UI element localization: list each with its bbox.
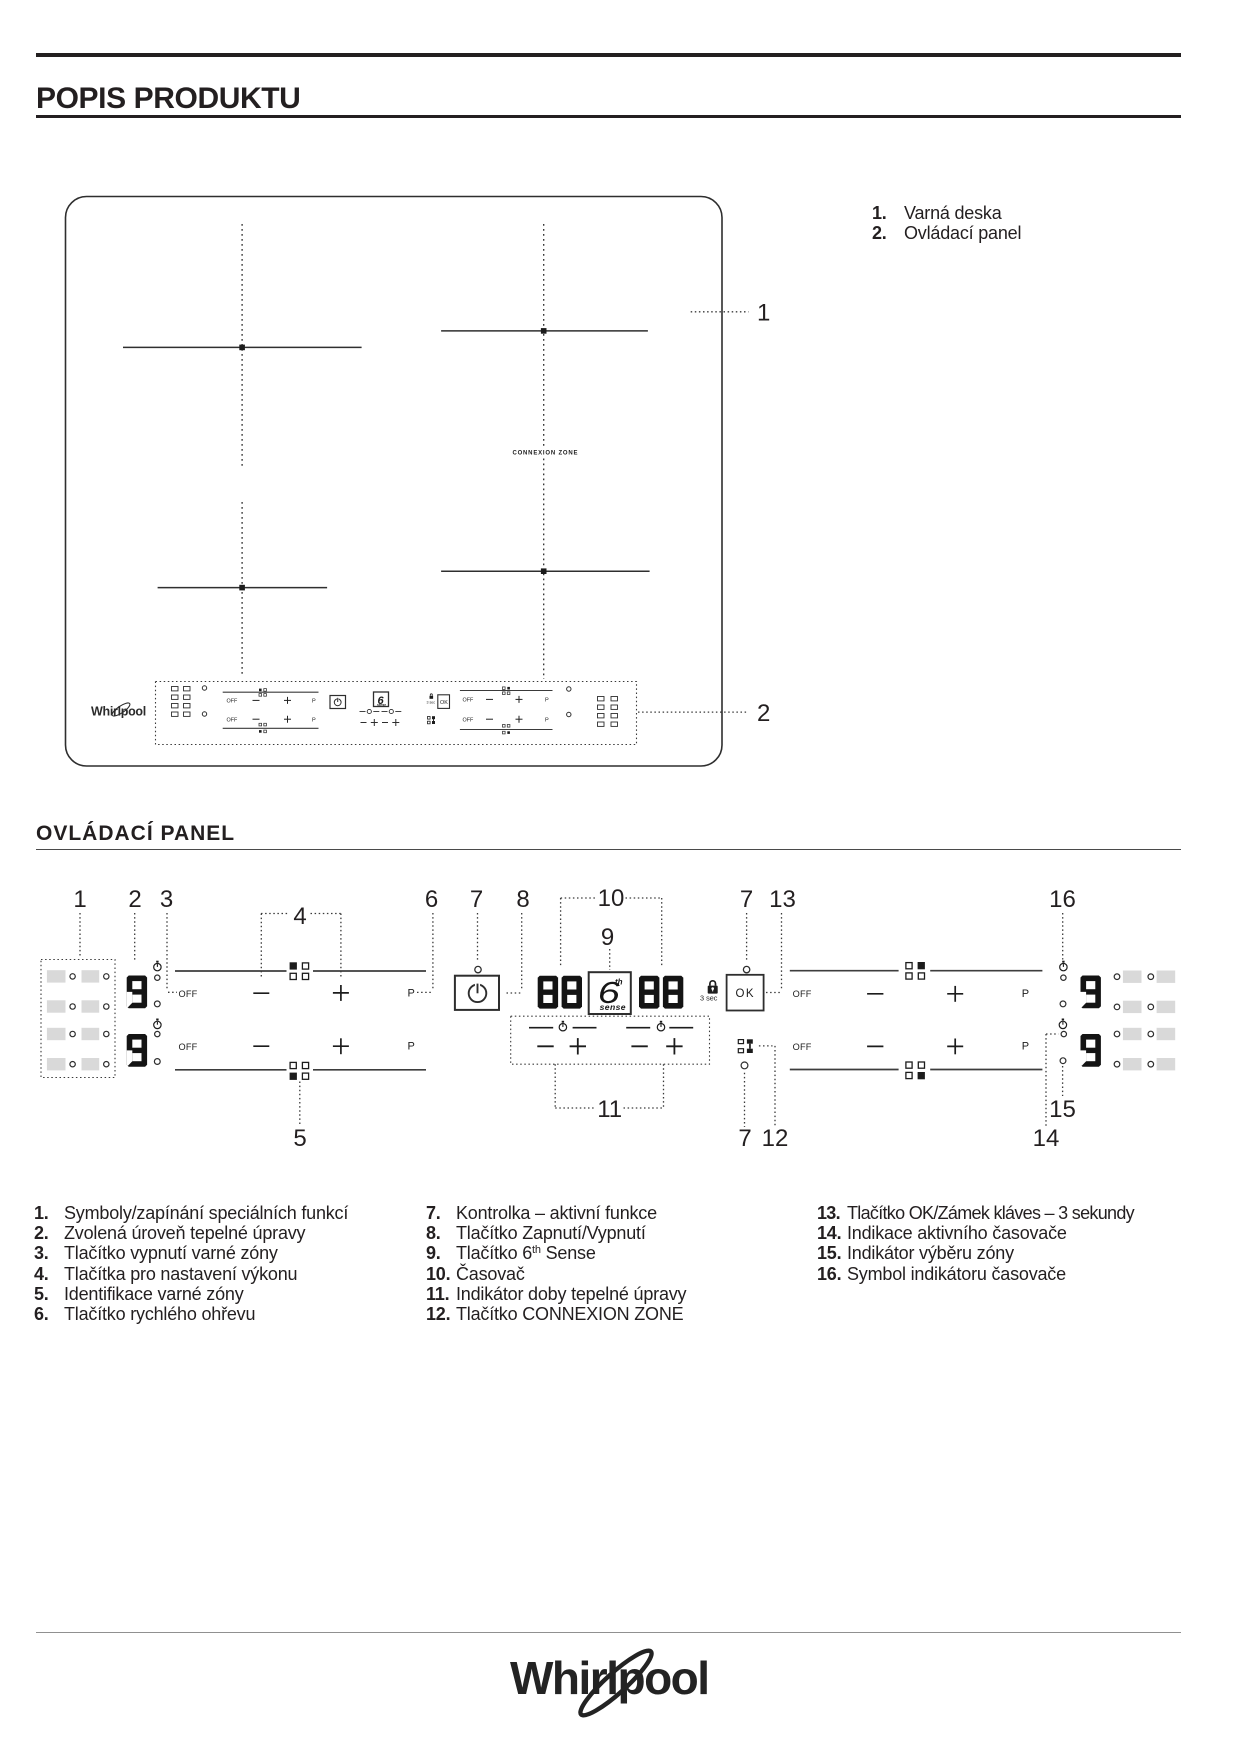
svg-text:2: 2 bbox=[757, 700, 770, 727]
svg-text:10: 10 bbox=[598, 885, 625, 912]
svg-text:14: 14 bbox=[1033, 1125, 1060, 1152]
svg-text:9: 9 bbox=[601, 924, 614, 951]
svg-text:P: P bbox=[312, 718, 316, 724]
svg-text:3: 3 bbox=[160, 886, 173, 913]
svg-text:P: P bbox=[312, 699, 316, 705]
svg-text:OK: OK bbox=[440, 700, 448, 706]
svg-text:12: 12 bbox=[762, 1125, 789, 1152]
svg-text:OFF: OFF bbox=[179, 1042, 198, 1052]
svg-text:P: P bbox=[545, 698, 549, 704]
svg-text:OFF: OFF bbox=[463, 698, 474, 704]
svg-text:1: 1 bbox=[73, 886, 86, 913]
svg-text:sense: sense bbox=[600, 1002, 626, 1012]
svg-text:P: P bbox=[545, 718, 549, 724]
svg-text:3 sec: 3 sec bbox=[700, 994, 718, 1003]
svg-text:3 sec: 3 sec bbox=[427, 701, 436, 705]
svg-text:8: 8 bbox=[516, 886, 529, 913]
svg-text:15: 15 bbox=[1049, 1096, 1076, 1123]
svg-text:11: 11 bbox=[597, 1096, 622, 1123]
svg-text:OFF: OFF bbox=[227, 699, 238, 705]
svg-text:16: 16 bbox=[1049, 886, 1076, 913]
svg-text:OFF: OFF bbox=[793, 989, 812, 999]
svg-text:6: 6 bbox=[425, 886, 438, 913]
svg-text:CONNEXION ZONE: CONNEXION ZONE bbox=[512, 451, 578, 457]
svg-text:13: 13 bbox=[769, 886, 796, 913]
svg-text:P: P bbox=[408, 988, 415, 1000]
svg-text:P: P bbox=[1022, 988, 1029, 1000]
svg-text:7: 7 bbox=[740, 886, 753, 913]
svg-text:OK: OK bbox=[735, 988, 754, 1000]
svg-text:P: P bbox=[408, 1041, 415, 1053]
svg-text:7: 7 bbox=[470, 886, 483, 913]
svg-text:P: P bbox=[1022, 1041, 1029, 1053]
svg-text:1: 1 bbox=[757, 300, 770, 327]
svg-text:4: 4 bbox=[293, 903, 306, 930]
svg-text:OFF: OFF bbox=[227, 717, 238, 723]
svg-text:OFF: OFF bbox=[463, 717, 474, 723]
svg-text:sense: sense bbox=[377, 703, 386, 707]
svg-text:OFF: OFF bbox=[179, 989, 198, 999]
svg-text:2: 2 bbox=[128, 886, 141, 913]
svg-text:7: 7 bbox=[738, 1125, 751, 1152]
svg-text:5: 5 bbox=[293, 1125, 306, 1152]
svg-text:th: th bbox=[615, 978, 623, 987]
svg-text:OFF: OFF bbox=[793, 1042, 812, 1052]
